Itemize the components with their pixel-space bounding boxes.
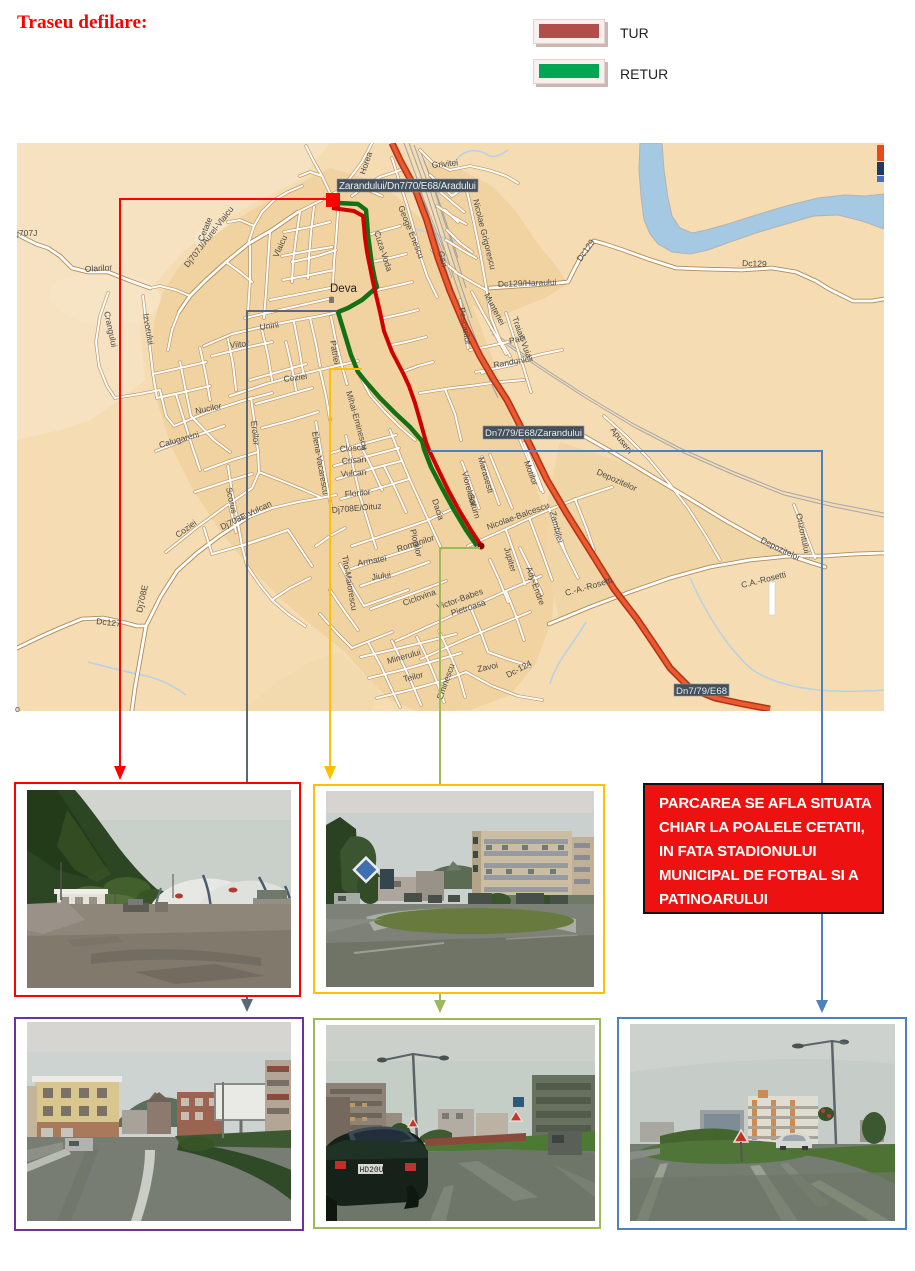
svg-text:Dc129/Haraului: Dc129/Haraului [498,277,557,289]
svg-text:o: o [15,704,20,714]
svg-text:Zarandului/Dn7/70/E68/Aradului: Zarandului/Dn7/70/E68/Aradului [339,181,476,192]
svg-text:HD20UJV: HD20UJV [360,1166,394,1175]
svg-text:Dn7/79/E68/Zarandului: Dn7/79/E68/Zarandului [485,428,582,439]
svg-text:j707J: j707J [16,228,37,238]
svg-text:Deva: Deva [330,283,357,295]
svg-text:Olarilor: Olarilor [84,262,112,274]
svg-text:Dn7/79/E68: Dn7/79/E68 [676,686,727,697]
svg-text:Dc129: Dc129 [742,258,767,269]
